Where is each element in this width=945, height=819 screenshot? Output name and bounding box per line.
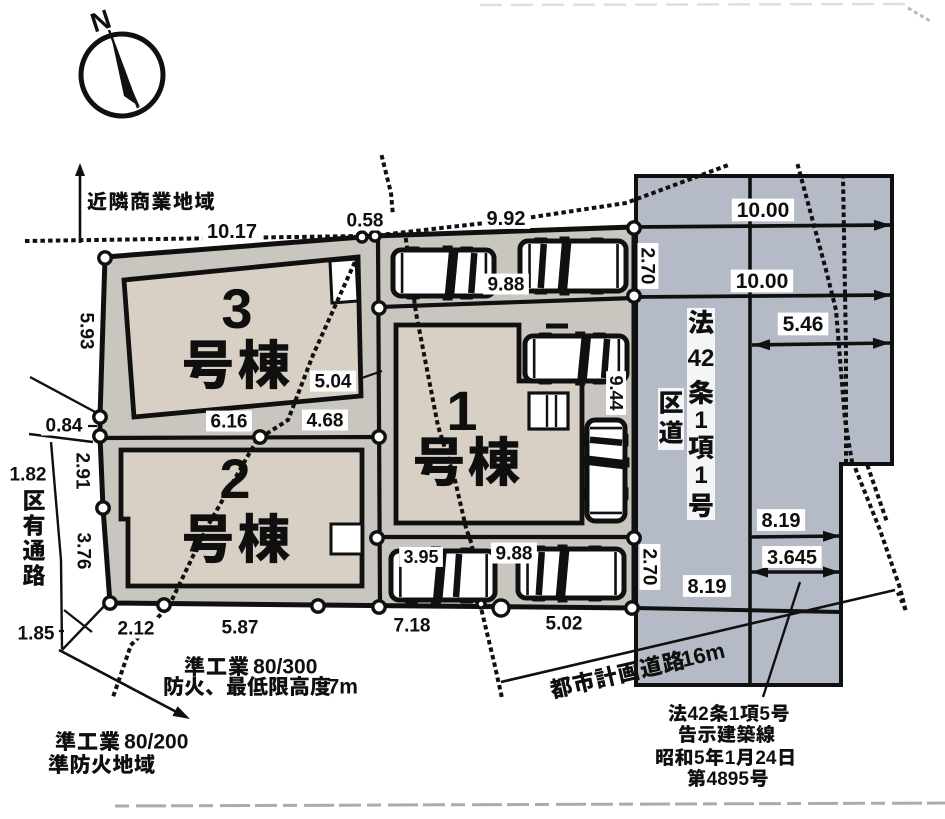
svg-text:6.16: 6.16 — [211, 412, 248, 433]
svg-text:0.58: 0.58 — [347, 211, 384, 232]
svg-text:5: 5 — [694, 748, 705, 769]
svg-text:10.17: 10.17 — [207, 221, 257, 243]
svg-text:3.95: 3.95 — [403, 547, 438, 567]
svg-text:2.70: 2.70 — [636, 248, 657, 285]
svg-text:2.70: 2.70 — [638, 549, 659, 586]
svg-text:9.92: 9.92 — [487, 208, 526, 230]
svg-text:3.76: 3.76 — [72, 533, 93, 570]
svg-text:9.44: 9.44 — [606, 375, 626, 410]
svg-text:2: 2 — [219, 447, 250, 510]
svg-text:0.84: 0.84 — [46, 416, 83, 437]
svg-text:9.88: 9.88 — [496, 544, 533, 565]
svg-text:7.18: 7.18 — [394, 616, 431, 637]
svg-text:5.46: 5.46 — [783, 313, 824, 336]
svg-text:1.82: 1.82 — [10, 465, 47, 486]
svg-text:3.645: 3.645 — [767, 547, 817, 569]
svg-text:8.19: 8.19 — [688, 576, 727, 598]
svg-text:1: 1 — [694, 407, 707, 434]
svg-text:5.02: 5.02 — [546, 614, 583, 635]
svg-text:10.00: 10.00 — [737, 199, 790, 222]
svg-text:1: 1 — [729, 704, 740, 725]
svg-text:4.68: 4.68 — [307, 411, 344, 432]
svg-text:4895: 4895 — [707, 769, 750, 790]
svg-text:1: 1 — [725, 748, 736, 769]
svg-text:1: 1 — [694, 462, 707, 489]
svg-text:80/200: 80/200 — [124, 731, 188, 754]
svg-text:80/300: 80/300 — [253, 656, 317, 679]
svg-text:1: 1 — [446, 379, 477, 442]
svg-text:8.19: 8.19 — [762, 510, 801, 532]
svg-text:24: 24 — [755, 748, 777, 769]
svg-text:3: 3 — [221, 277, 252, 340]
svg-text:2.91: 2.91 — [71, 453, 92, 490]
svg-text:5.04: 5.04 — [315, 372, 352, 393]
svg-text:42: 42 — [688, 704, 709, 725]
svg-text:5: 5 — [759, 704, 770, 725]
svg-text:5.93: 5.93 — [75, 313, 96, 350]
svg-text:42: 42 — [688, 345, 715, 372]
svg-text:5.87: 5.87 — [222, 618, 259, 639]
svg-text:1.85: 1.85 — [18, 624, 55, 645]
svg-text:N: N — [87, 4, 115, 39]
svg-text:10.00: 10.00 — [736, 270, 789, 293]
svg-text:7m: 7m — [328, 676, 358, 699]
svg-text:9.88: 9.88 — [488, 275, 525, 296]
svg-text:2.12: 2.12 — [118, 619, 155, 640]
